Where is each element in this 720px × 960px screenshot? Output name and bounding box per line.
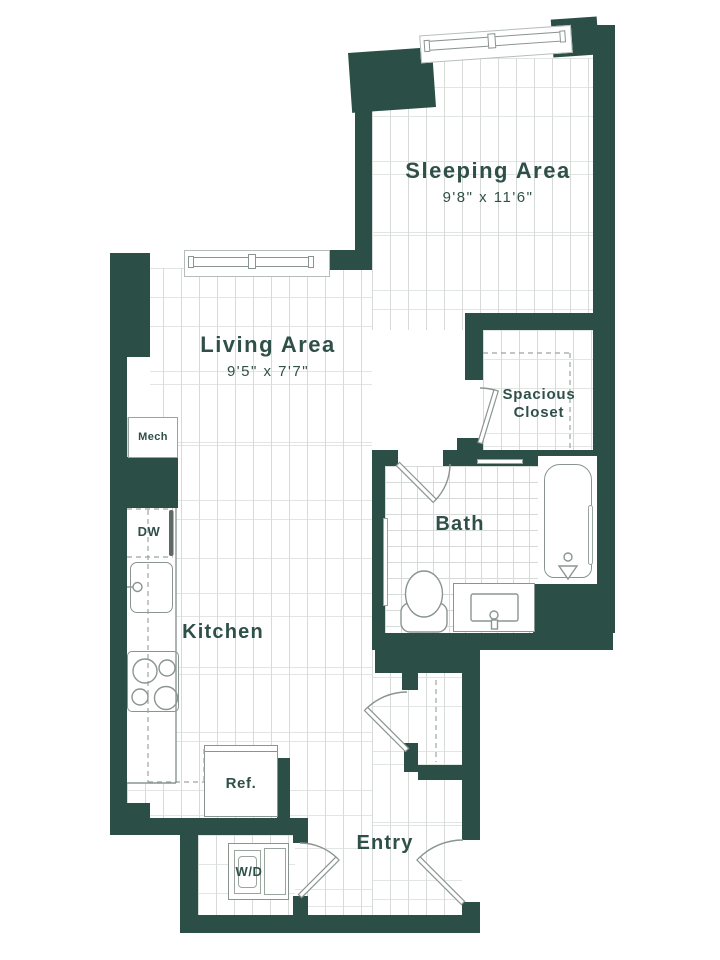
tub-drain-icon xyxy=(564,553,572,561)
sleeping-area-dims: 9'8" x 11'6" xyxy=(368,189,608,207)
sleeping-area-label: Sleeping Area xyxy=(368,158,608,184)
vanity-faucet-icon xyxy=(490,611,498,619)
toilet-bowl xyxy=(406,571,443,617)
kitchen-label: Kitchen xyxy=(178,620,268,644)
bath-door-leaf xyxy=(396,462,436,502)
floor-plan: Sleeping Area 9'8" x 11'6" Living Area 9… xyxy=(0,0,720,960)
hall-closet-door-leaf xyxy=(364,707,408,751)
burner-icon xyxy=(132,689,148,705)
tub-drain-arrow-icon xyxy=(559,566,577,579)
living-area-label: Living Area xyxy=(148,332,388,358)
burner-icon xyxy=(159,660,175,676)
burner-icon xyxy=(155,687,178,710)
wd-door-arc xyxy=(300,843,338,859)
hall-closet-door-arc xyxy=(366,692,407,709)
wd-door-leaf xyxy=(298,857,339,898)
bath-door-arc xyxy=(435,464,450,501)
burner-icon xyxy=(133,659,157,683)
entry-door-leaf xyxy=(417,857,465,905)
washer-dryer-label: W/D xyxy=(229,864,269,880)
detail-overlay xyxy=(0,0,720,960)
vanity-faucet-icon xyxy=(492,620,498,629)
refrigerator-label: Ref. xyxy=(204,775,278,793)
mech-label: Mech xyxy=(128,431,178,444)
spacious-closet-label: Spacious Closet xyxy=(494,386,584,422)
dishwasher-label: DW xyxy=(128,524,170,540)
bath-label: Bath xyxy=(410,512,510,536)
entry-label: Entry xyxy=(343,831,427,855)
living-area-dims: 9'5" x 7'7" xyxy=(148,363,388,381)
kitchen-faucet-icon xyxy=(133,583,142,592)
